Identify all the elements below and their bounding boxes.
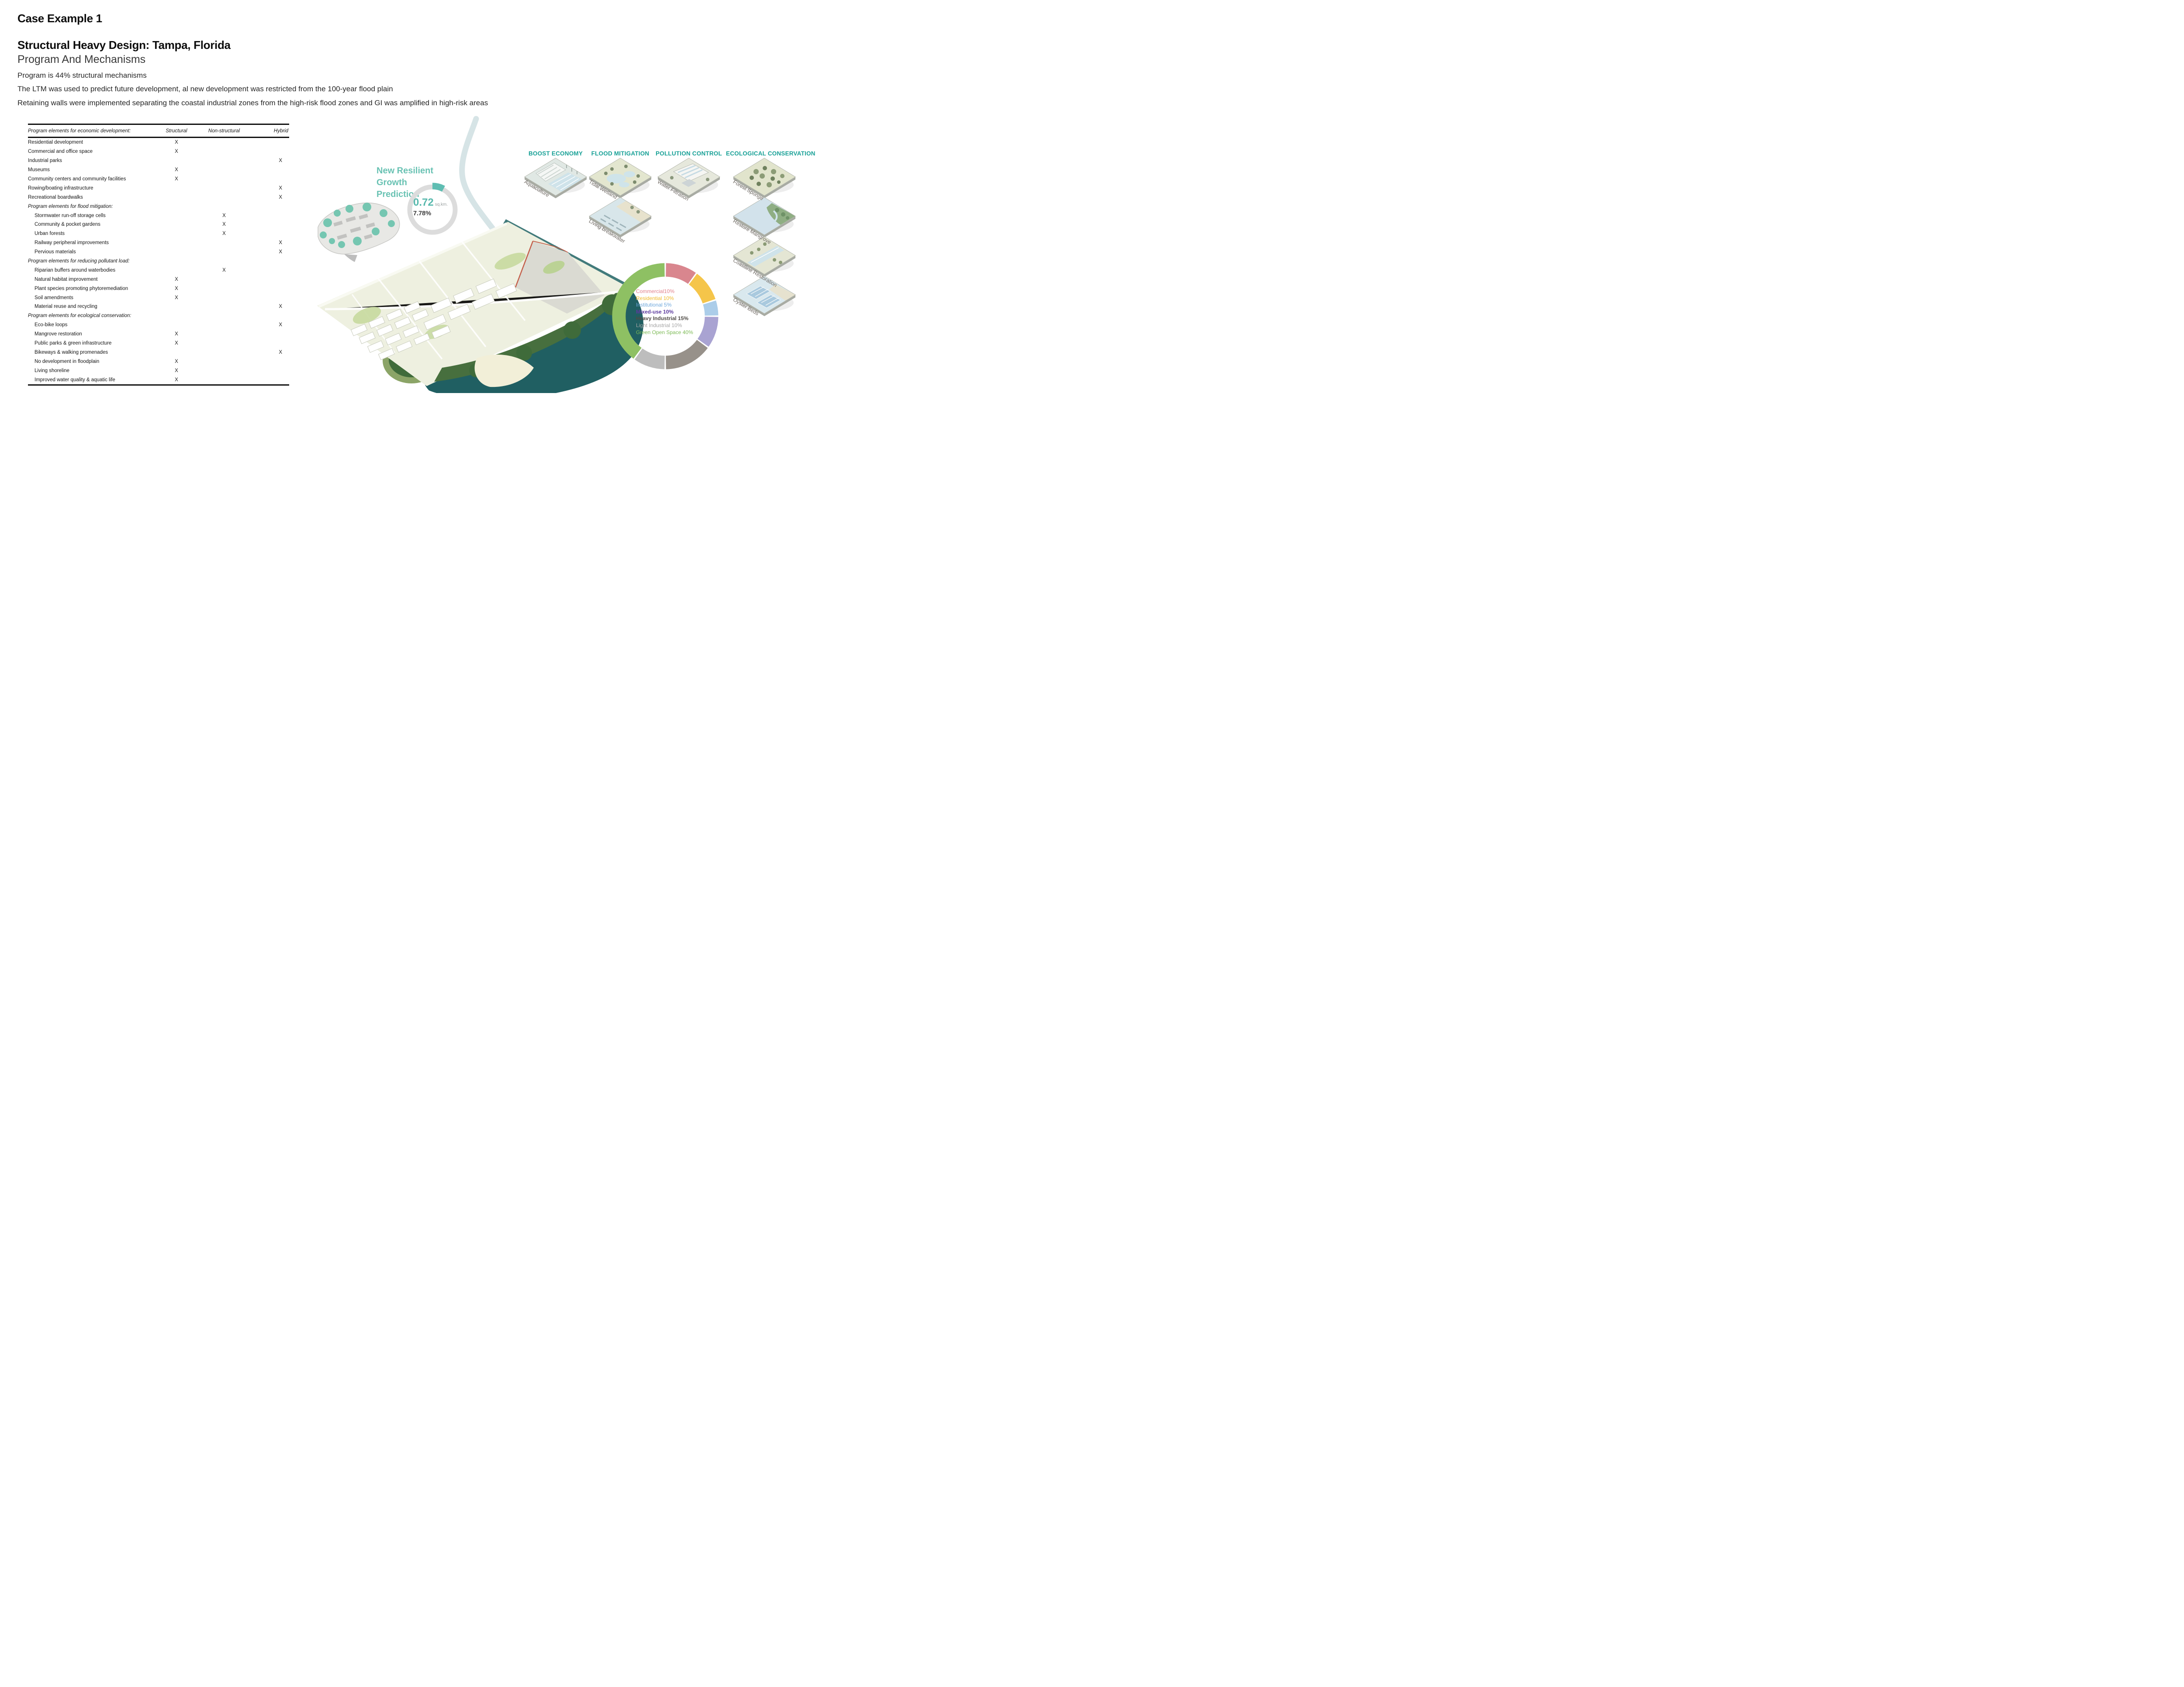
table-row: Living shorelineX [28,366,289,375]
prediction-ring-labels: 0.72sq.km. 7.78% [413,197,461,217]
table-header-nonstructural: Non-structural [198,128,250,134]
table-row: Plant species promoting phytoremediation… [28,284,289,293]
row-label: Program elements for ecological conserva… [28,313,155,318]
mechanism-tile-breakwater: Living breakwater [587,196,653,235]
row-label: Bikeways & walking promenades [28,350,155,355]
mechanism-tile-wetland: Tidal Wetland [587,157,653,196]
mark-cell-structural: X [155,377,198,383]
row-label: Recreational boardwalks [28,195,155,200]
table-row: Eco-bike loopsX [28,321,289,330]
prediction-value: 0.72 [413,197,434,208]
table-row: Pervious materialsX [28,248,289,257]
mark-cell-structural: X [155,149,198,154]
mechanism-tile-mangrove: Restore Mangrove [732,196,797,235]
table-row: Community centers and community faciliti… [28,175,289,184]
row-label: Pervious materials [28,249,155,255]
row-label: No development in floodplain [28,359,155,364]
table-row: No development in floodplainX [28,357,289,366]
table-row: Bikeways & walking promenadesX [28,348,289,357]
row-label: Railway peripheral improvements [28,240,155,245]
table-row: Rowing/boating infrastructureX [28,183,289,193]
table-row: Industrial parksX [28,156,289,166]
table-row: Mangrove restorationX [28,330,289,339]
table-section-row: Program elements for ecological conserva… [28,311,289,321]
table-row: Improved water quality & aquatic lifeX [28,375,289,384]
table-header-hybrid: Hybrid [250,128,289,134]
row-label: Museums [28,167,155,172]
legend-item-institutional: Institutional 5% [636,302,693,309]
table-row: Soil amendmentsX [28,293,289,302]
prediction-percent: 7.78% [413,210,461,217]
donut-segment-commercial [666,270,692,278]
mark-cell-structural: X [155,176,198,182]
row-label: Rowing/boating infrastructure [28,186,155,191]
table-row: Recreational boardwalksX [28,193,289,202]
row-label: Improved water quality & aquatic life [28,377,155,383]
row-label: Urban forests [28,231,155,236]
mark-cell-structural: X [155,368,198,373]
mark-cell-hybrid: X [250,249,289,255]
mark-cell-structural: X [155,277,198,282]
slide-canvas: Case Example 1 Structural Heavy Design: … [0,0,864,422]
mark-cell-structural: X [155,359,198,364]
table-row: Residential developmentX [28,138,289,147]
row-label: Program elements for flood mitigation: [28,204,155,209]
donut-segment-mixed-use [703,317,712,343]
donut-segment-heavy-industrial [666,344,702,363]
table-row: Commercial and office spaceX [28,147,289,156]
mechanism-tile-aquaculture: Aquaculture [523,157,588,196]
mechanism-column-title: ECOLOGICAL CONSERVATION [726,150,803,157]
mark-cell-structural: X [155,286,198,291]
mechanism-column: POLLUTION CONTROLWater Filtration [650,150,727,196]
table-row: MuseumsX [28,166,289,175]
mark-cell-structural: X [155,341,198,346]
mark-cell-nonstructural: X [198,222,250,227]
river-channel [462,119,496,233]
row-label: Mangrove restoration [28,331,155,337]
mark-cell-hybrid: X [250,322,289,328]
mark-cell-structural: X [155,295,198,300]
ring-growth-slice [432,186,443,189]
row-label: Stormwater run-off storage cells [28,213,155,218]
bullet-retaining-walls: Retaining walls were implemented separat… [17,99,488,107]
legend-item-mixed-use: Mixed-use 10% [636,309,693,316]
mark-cell-hybrid: X [250,304,289,309]
mark-cell-hybrid: X [250,350,289,355]
row-label: Soil amendments [28,295,155,300]
mechanism-tile-forest: Forest Sponge [732,157,797,196]
row-label: Living shoreline [28,368,155,373]
prediction-unit: sq.km. [435,202,448,207]
section-title: Program And Mechanisms [17,53,145,66]
row-label: Community centers and community faciliti… [28,176,155,182]
mark-cell-nonstructural: X [198,213,250,218]
legend-item-light-industrial: Light Industrial 10% [636,322,693,329]
table-row: Natural habitat improvementX [28,275,289,284]
page-title: Structural Heavy Design: Tampa, Florida [17,38,231,52]
case-kicker: Case Example 1 [17,12,102,25]
bullet-ltm: The LTM was used to predict future devel… [17,85,393,93]
table-row: Railway peripheral improvementsX [28,238,289,248]
donut-segment-residential [693,279,709,301]
donut-segment-light-industrial [639,354,665,362]
table-row: Stormwater run-off storage cellsX [28,211,289,220]
table-row: Material reuse and recyclingX [28,302,289,311]
legend-item-heavy-industrial: Heavy Industrial 15% [636,315,693,322]
row-label: Industrial parks [28,158,155,163]
table-row: Community & pocket gardensX [28,220,289,229]
row-label: Material reuse and recycling [28,304,155,309]
row-label: Program elements for reducing pollutant … [28,259,155,264]
legend-item-residential: Residential 10% [636,295,693,302]
table-row: Urban forestsX [28,229,289,238]
program-table-rows: Residential developmentXCommercial and o… [28,138,289,386]
row-label: Commercial and office space [28,149,155,154]
table-section-row: Program elements for flood mitigation: [28,202,289,211]
mark-cell-structural: X [155,331,198,337]
growth-prediction-minimap [305,195,405,262]
mark-cell-hybrid: X [250,186,289,191]
mechanism-column: FLOOD MITIGATIONTidal WetlandLiving brea… [582,150,659,235]
donut-segment-institutional [709,303,712,316]
table-section-row: Program elements for reducing pollutant … [28,257,289,266]
mechanism-column-title: POLLUTION CONTROL [650,150,727,157]
table-row: Riparian buffers around waterbodiesX [28,266,289,275]
table-header-category: Program elements for economic developmen… [28,128,155,134]
mark-cell-hybrid: X [250,240,289,245]
mark-cell-nonstructural: X [198,268,250,273]
legend-item-commercial: Commercial10% [636,288,693,295]
row-label: Public parks & green infrastructure [28,341,155,346]
landuse-legend: Commercial10%Residential 10%Institutiona… [636,288,693,336]
mark-cell-structural: X [155,167,198,172]
mark-cell-hybrid: X [250,195,289,200]
row-label: Riparian buffers around waterbodies [28,268,155,273]
table-header-row: Program elements for economic developmen… [28,125,289,138]
table-row: Public parks & green infrastructureX [28,339,289,348]
mark-cell-nonstructural: X [198,231,250,236]
row-label: Plant species promoting phytoremediation [28,286,155,291]
legend-item-green-open-space: Green Open Space 40% [636,329,693,336]
mark-cell-hybrid: X [250,158,289,163]
mechanism-tile-filtration: Water Filtration [656,157,722,196]
mechanism-column: ECOLOGICAL CONSERVATIONForest SpongeRest… [726,150,803,314]
bullet-program-share: Program is 44% structural mechanisms [17,71,147,80]
row-label: Residential development [28,140,155,145]
row-label: Natural habitat improvement [28,277,155,282]
row-label: Eco-bike loops [28,322,155,328]
program-elements-table: Program elements for economic developmen… [28,124,289,386]
mechanism-column-title: FLOOD MITIGATION [582,150,659,157]
row-label: Community & pocket gardens [28,222,155,227]
mark-cell-structural: X [155,140,198,145]
table-header-structural: Structural [155,128,198,134]
